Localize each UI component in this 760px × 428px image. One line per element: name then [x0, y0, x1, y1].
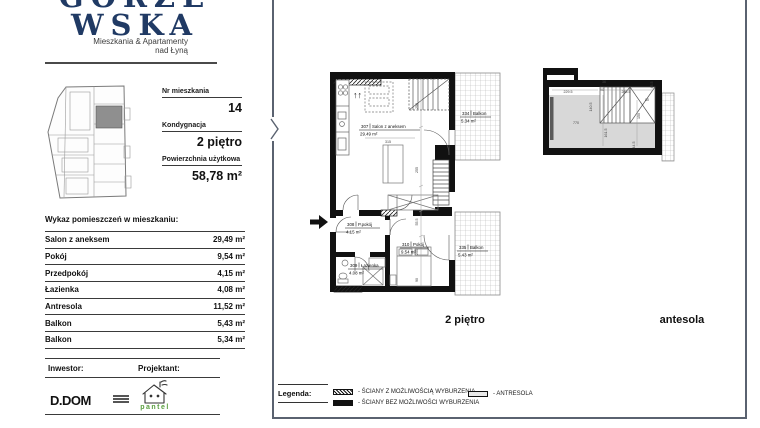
svg-text:310: 310 — [402, 242, 410, 247]
room-area: 4,15 m² — [217, 269, 245, 278]
table-row: Salon z aneksem 29,49 m² — [45, 231, 245, 248]
svg-text:334: 334 — [462, 111, 470, 116]
room-name: Łazienka — [45, 285, 79, 294]
svg-text:5.34 m²: 5.34 m² — [461, 119, 476, 124]
inwestor-label: Inwestor: — [48, 364, 84, 373]
floor-plan-main: ↑↑ — [325, 60, 510, 310]
panel-divider-line — [272, 0, 274, 418]
key-plan — [36, 80, 140, 204]
floor-plan-antresola: 229.5 770 90 36 285.5 80 45.5 140.5 161.… — [540, 60, 710, 170]
svg-text:140.5: 140.5 — [589, 103, 593, 112]
stairs-to-antresola — [433, 160, 449, 205]
svg-text:Balkon: Balkon — [470, 245, 484, 250]
svg-text:29.49 m²: 29.49 m² — [360, 132, 378, 137]
balcony-top — [455, 73, 500, 160]
legend: Legenda: - ŚCIANY Z MOŻLIWOŚCIĄ WYBURZEN… — [272, 380, 746, 416]
page-bottom-border — [272, 417, 747, 419]
pantel-house-icon — [139, 379, 171, 405]
svg-text:250: 250 — [415, 249, 419, 255]
svg-text:55.5: 55.5 — [415, 219, 419, 226]
table-row: Pokój 9,54 m² — [45, 248, 245, 265]
unit-number-label: Nr mieszkania — [162, 88, 242, 98]
key-plan-highlighted-unit — [96, 106, 122, 128]
page-right-border — [745, 0, 747, 418]
room-area: 11,52 m² — [213, 302, 245, 311]
svg-text:Łazienka: Łazienka — [361, 263, 379, 268]
antresola-area — [549, 95, 655, 148]
table-row: Balkon 5,34 m² — [45, 331, 245, 349]
svg-text:315: 315 — [385, 140, 391, 144]
kitchen-sink — [338, 112, 346, 119]
key-plan-outline — [48, 86, 126, 198]
svg-text:P.pokój: P.pokój — [358, 222, 372, 227]
room-area: 5,43 m² — [217, 319, 245, 328]
svg-text:150: 150 — [637, 113, 641, 119]
projektant-label: Projektant: — [138, 364, 180, 373]
table-row: Łazienka 4,08 m² — [45, 281, 245, 298]
svg-text:285.5: 285.5 — [622, 90, 631, 94]
room-area: 4,08 m² — [217, 285, 245, 294]
svg-text:80: 80 — [645, 98, 649, 102]
antresola-plan-caption: antesola — [642, 314, 722, 326]
toilet — [339, 273, 347, 279]
svg-text:229.5: 229.5 — [564, 90, 573, 94]
legend-item-text: - ŚCIANY BEZ MOŻLIWOŚCI WYBURZENIA — [358, 400, 479, 406]
room-name: Antresola — [45, 302, 82, 311]
pantel-logo: pantel — [138, 404, 172, 411]
room-list: Wykaz pomieszczeń w mieszkaniu: Salon z … — [45, 215, 245, 349]
svg-text:309: 309 — [350, 263, 358, 268]
divider-chevron-icon — [264, 117, 282, 141]
unit-area-label: Powierzchnia użytkowa — [162, 156, 242, 166]
svg-text:36: 36 — [602, 80, 606, 84]
svg-text:161.5: 161.5 — [604, 129, 608, 138]
svg-text:44.5: 44.5 — [632, 142, 636, 149]
legend-item-text: - ŚCIANY Z MOŻLIWOŚCIĄ WYBURZENIA — [358, 389, 475, 395]
logo-divider — [45, 62, 217, 64]
svg-text:4.08 m²: 4.08 m² — [349, 271, 364, 276]
legend-swatch-antresola — [468, 391, 488, 397]
unit-area-value: 58,78 m² — [162, 166, 242, 184]
main-plan-caption: 2 piętro — [425, 314, 505, 326]
label-salon: 307 Salon z aneksem 29.49 m² 315 — [359, 124, 420, 145]
kitchen-counter — [336, 80, 349, 155]
svg-text:90: 90 — [600, 88, 604, 92]
logo-line-2: WSKA — [40, 11, 230, 40]
footer-rule-bottom — [45, 414, 220, 415]
table-row: Antresola 11,52 m² — [45, 298, 245, 315]
legend-swatch-solid — [333, 400, 353, 406]
svg-text:335: 335 — [459, 245, 467, 250]
label-ppokoj: 308 P.pokój 4.15 m² — [345, 222, 380, 235]
svg-text:Pokój: Pokój — [413, 242, 424, 247]
label-lazienka: 309 Łazienka 4.08 m² — [348, 263, 383, 276]
room-name: Przedpokój — [45, 269, 88, 278]
legend-swatch-hatched — [333, 389, 353, 395]
svg-text:250: 250 — [415, 103, 419, 109]
antresola-balcony-strip — [662, 93, 674, 161]
svg-text:4.15 m²: 4.15 m² — [346, 230, 361, 235]
svg-text:45.5: 45.5 — [650, 82, 654, 89]
footer-rule-mid — [45, 377, 220, 378]
room-name: Balkon — [45, 319, 72, 328]
room-area: 9,54 m² — [217, 252, 245, 261]
table-row: Przedpokój 4,15 m² — [45, 264, 245, 281]
svg-text:5.43 m²: 5.43 m² — [458, 253, 473, 258]
hob-burner — [338, 85, 342, 89]
svg-text:255: 255 — [415, 167, 419, 173]
footer-rule-top — [45, 358, 220, 359]
ddom-logo-tagline-lines — [113, 395, 129, 405]
unit-number-value: 14 — [162, 98, 242, 116]
sofa — [383, 145, 403, 183]
room-area: 5,34 m² — [217, 335, 245, 344]
room-area: 29,49 m² — [213, 235, 245, 244]
salon-furniture — [365, 82, 438, 210]
brochure-page: GORZE WSKA Mieszkania & Apartamenty nad … — [0, 0, 760, 428]
legend-label: Legenda: — [278, 384, 328, 403]
unit-info: Nr mieszkania 14 Kondygnacja 2 piętro Po… — [162, 88, 242, 184]
door-arcs — [336, 130, 449, 271]
unit-floor-value: 2 piętro — [162, 132, 242, 150]
legend-item-text: - ANTRESOLA — [493, 391, 533, 397]
room-list-title: Wykaz pomieszczeń w mieszkaniu: — [45, 215, 245, 224]
unit-floor-label: Kondygnacja — [162, 122, 242, 132]
ddom-logo: D.DOM — [50, 393, 91, 408]
room-name: Salon z aneksem — [45, 235, 109, 244]
table-row: Balkon 5,43 m² — [45, 314, 245, 331]
bathroom-sink — [342, 260, 348, 266]
svg-text:90: 90 — [415, 278, 419, 282]
logo-tagline-2: nad Łyną — [40, 47, 188, 56]
svg-text:Salon z aneksem: Salon z aneksem — [372, 124, 406, 129]
svg-text:Balkon: Balkon — [473, 111, 487, 116]
svg-text:770: 770 — [573, 121, 579, 125]
antresola-window — [550, 97, 554, 140]
room-name: Pokój — [45, 252, 67, 261]
svg-text:307: 307 — [361, 124, 369, 129]
svg-text:308: 308 — [347, 222, 355, 227]
room-name: Balkon — [45, 335, 72, 344]
up-arrows: ↑↑ — [353, 90, 362, 100]
